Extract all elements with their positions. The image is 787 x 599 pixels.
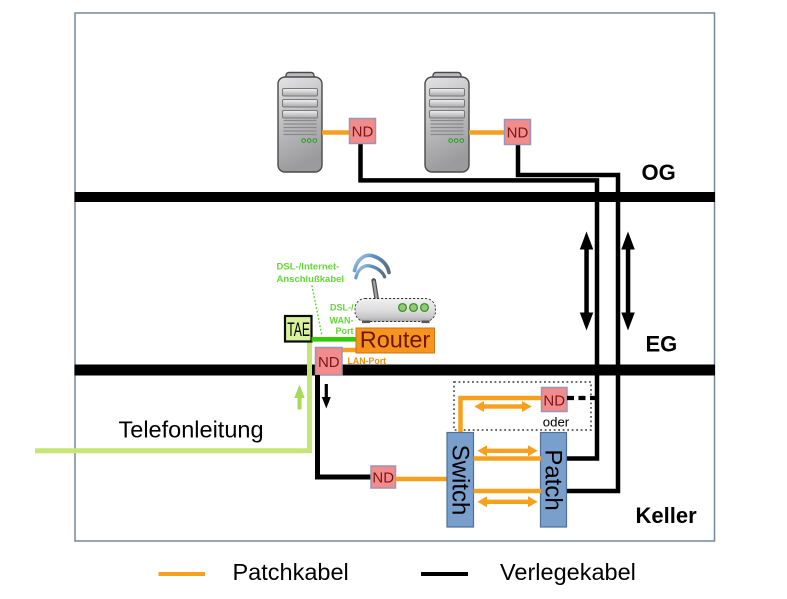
svg-text:ND: ND <box>543 393 565 410</box>
svg-text:ND: ND <box>507 125 529 142</box>
svg-text:Patch: Patch <box>540 449 567 510</box>
svg-text:LAN-Port: LAN-Port <box>348 356 387 366</box>
svg-text:oder: oder <box>543 415 570 430</box>
svg-text:Patchkabel: Patchkabel <box>233 559 349 585</box>
svg-text:DSL-/Internet-: DSL-/Internet- <box>277 262 340 273</box>
svg-text:ND: ND <box>372 470 394 487</box>
svg-text:Verlegekabel: Verlegekabel <box>500 559 636 585</box>
svg-text:Telefonleitung: Telefonleitung <box>119 417 264 443</box>
svg-text:Router: Router <box>360 327 431 353</box>
svg-text:WAN-: WAN- <box>330 316 354 326</box>
svg-text:ND: ND <box>318 354 340 371</box>
svg-text:Switch: Switch <box>447 445 474 516</box>
svg-text:TAE: TAE <box>287 320 310 340</box>
svg-text:EG: EG <box>646 332 678 357</box>
svg-text:DSL-/: DSL-/ <box>330 303 354 313</box>
svg-text:ND: ND <box>352 124 374 141</box>
svg-text:Keller: Keller <box>636 503 698 528</box>
svg-text:OG: OG <box>642 160 676 185</box>
svg-text:Anschlußkabel: Anschlußkabel <box>277 274 345 285</box>
svg-text:Port: Port <box>336 326 354 336</box>
